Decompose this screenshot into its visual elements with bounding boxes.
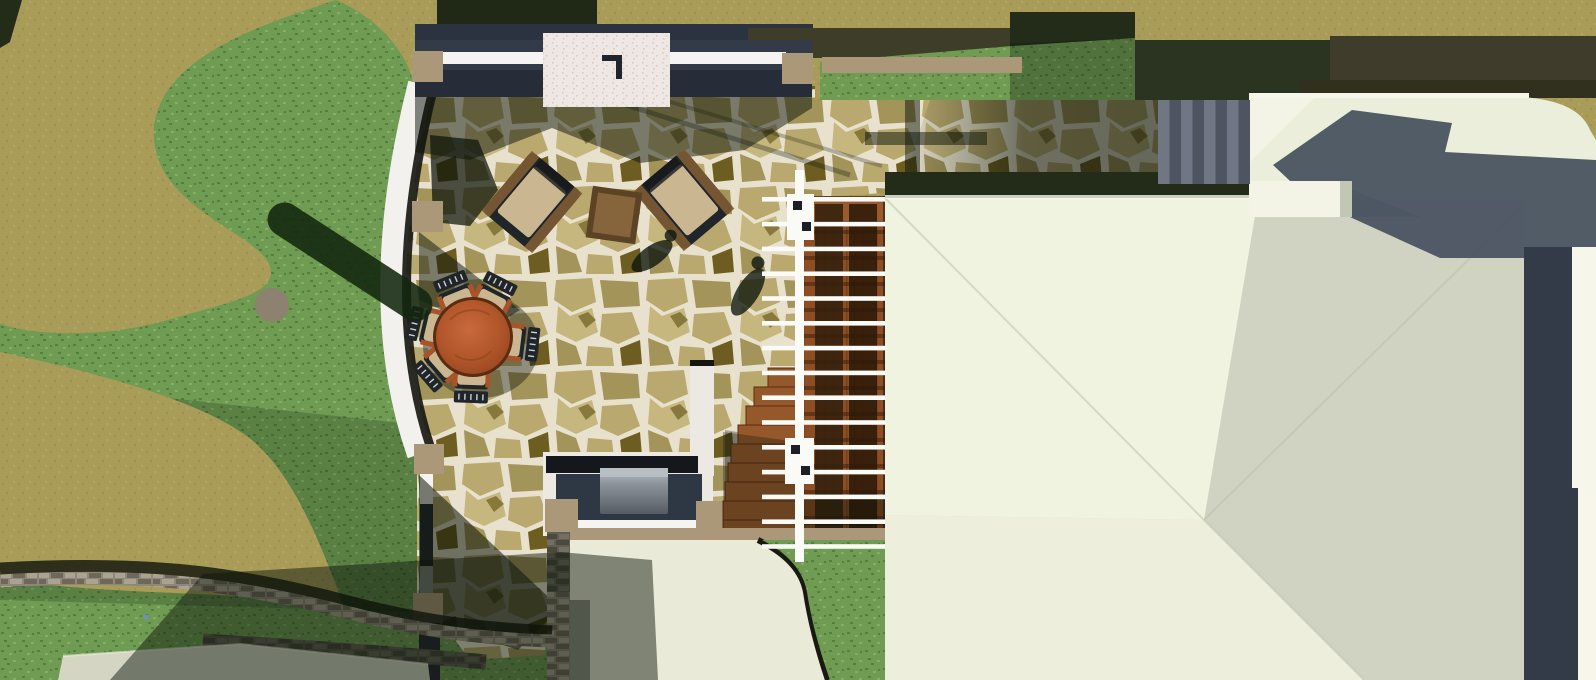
seat-wall-cap-left xyxy=(442,52,545,64)
side-table xyxy=(586,186,643,244)
site-plan-render xyxy=(0,0,1596,680)
flue-mark-v xyxy=(616,55,622,79)
far-right-roof xyxy=(1572,247,1596,488)
post xyxy=(414,444,444,474)
post xyxy=(545,499,578,532)
rail-post xyxy=(785,438,814,484)
rail-post xyxy=(787,194,814,240)
top-grass-shade xyxy=(1010,38,1135,102)
dark-band-right xyxy=(1330,36,1596,80)
post xyxy=(412,51,443,82)
site-plan-canvas xyxy=(0,0,1596,680)
roof-gap-band xyxy=(1524,247,1578,680)
pole-shadow-horizontal xyxy=(865,132,987,145)
post xyxy=(782,53,813,84)
roof-plane-top xyxy=(885,198,1258,520)
post xyxy=(696,501,727,532)
blue-flower xyxy=(144,615,149,620)
hill-steps xyxy=(1158,100,1250,184)
fireplace-top xyxy=(543,33,670,107)
post xyxy=(412,201,443,232)
chimney xyxy=(1249,181,1352,217)
log-end-cap xyxy=(255,288,289,322)
terrace-edge-band xyxy=(560,528,885,542)
far-right-roof-lower xyxy=(1578,488,1596,680)
wing-roof-edge xyxy=(1249,93,1529,98)
outdoor-fireplace-wall xyxy=(415,33,812,107)
seat-wall-cap-right xyxy=(668,52,786,64)
low-wall-cap xyxy=(822,57,1022,73)
hedge-top xyxy=(437,0,597,26)
